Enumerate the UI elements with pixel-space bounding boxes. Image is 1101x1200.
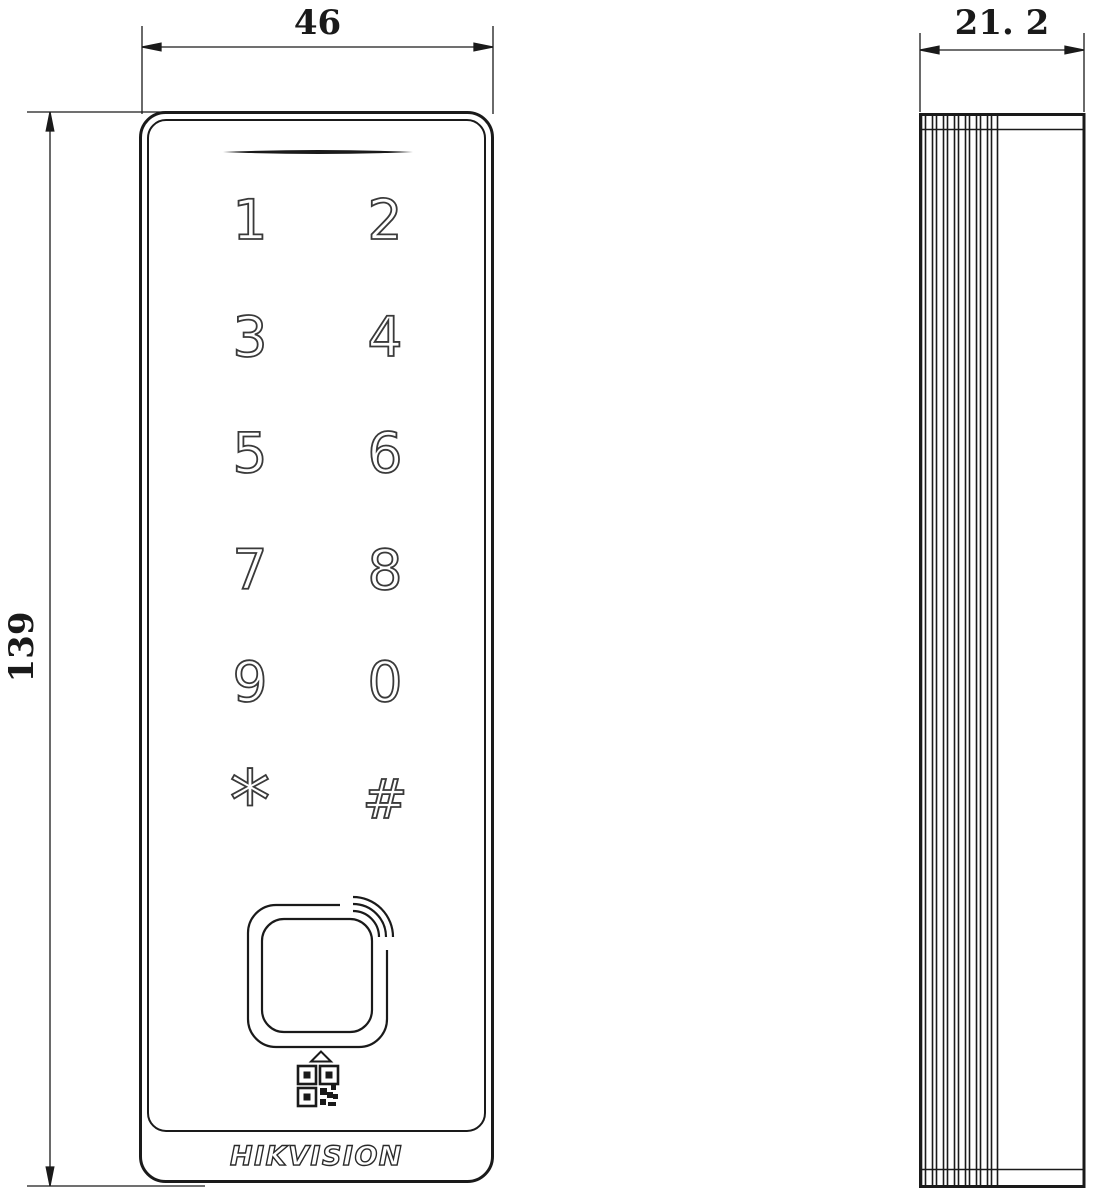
dimension-height-label: 139	[3, 597, 41, 697]
side-outer-housing	[921, 115, 1085, 1187]
keypad-key-9: 9	[190, 646, 310, 718]
arrowhead-left	[142, 43, 161, 51]
keypad-key-4: 4	[325, 301, 445, 373]
brand-logo: HIKVISION	[140, 1141, 493, 1172]
card-reader-inner-frame	[262, 919, 372, 1032]
keypad-key-8: 8	[325, 534, 445, 606]
dimension-width-label: 46	[142, 4, 493, 42]
keypad-key-1: 1	[190, 184, 310, 256]
up-arrow-icon	[311, 1052, 331, 1062]
speaker-slot-icon	[223, 150, 413, 154]
keypad-key-3: 3	[190, 301, 310, 373]
arrowhead-right	[1065, 46, 1084, 54]
dimension-drawing: 46 21. 2 139 1 2 3 4 5 6 7 8 9 0 * # HIK…	[0, 0, 1101, 1200]
dimension-height	[27, 112, 205, 1186]
keypad-key-5: 5	[190, 417, 310, 489]
dimension-depth	[920, 33, 1084, 112]
rfid-wave-icon	[353, 897, 393, 937]
qr-data-modules	[320, 1085, 338, 1106]
side-rib-lines	[922, 115, 998, 1186]
side-view	[920, 115, 1084, 1187]
dimension-depth-label: 21. 2	[915, 4, 1089, 42]
keypad-key-0: 0	[325, 646, 445, 718]
arrowhead-top	[46, 112, 54, 131]
arrowhead-right	[474, 43, 493, 51]
drawing-linework	[0, 0, 1101, 1200]
keypad-key-hash: #	[325, 764, 445, 836]
arrowhead-left	[920, 46, 939, 54]
contactless-card-reader-icon	[248, 897, 393, 1047]
qr-code-icon	[298, 1066, 338, 1106]
keypad-key-2: 2	[325, 184, 445, 256]
keypad-key-7: 7	[190, 534, 310, 606]
keypad-key-6: 6	[325, 417, 445, 489]
arrowhead-bottom	[46, 1167, 54, 1186]
front-inner-faceplate	[148, 120, 485, 1131]
keypad-key-star: *	[190, 758, 310, 846]
